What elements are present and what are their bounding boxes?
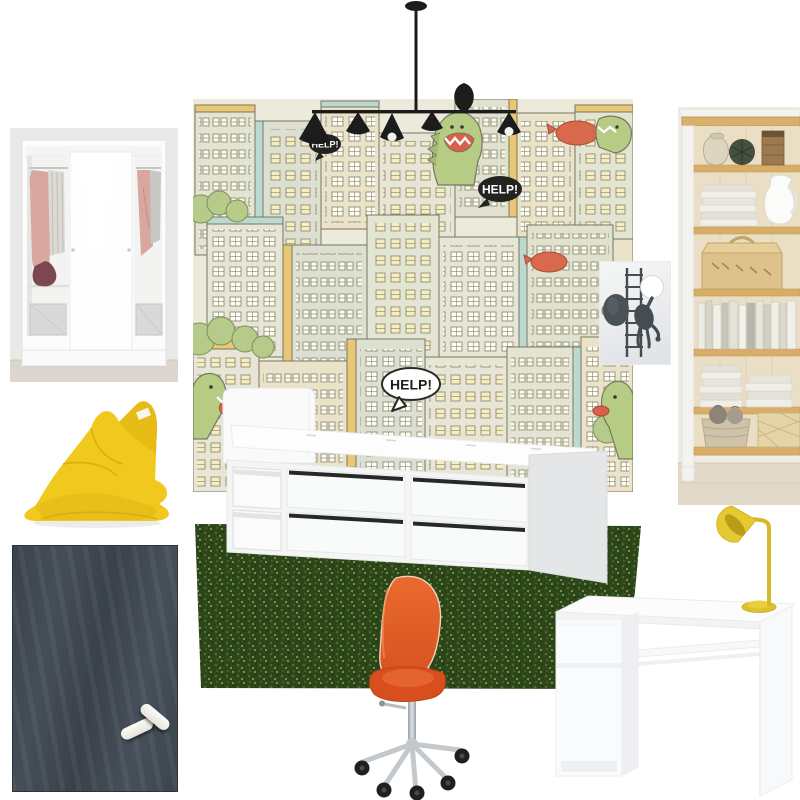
pendant-frame	[312, 1, 516, 113]
wardrobe-body	[22, 140, 166, 369]
chalkboard[interactable]	[12, 545, 178, 792]
beanbag-body	[24, 401, 169, 521]
moodboard-canvas: HELP! HELP! HELP!	[0, 0, 800, 800]
climbing-man-wall-sconce[interactable]	[600, 262, 670, 364]
orange-desk-chair[interactable]	[352, 568, 477, 800]
yellow-beanbag[interactable]	[5, 372, 190, 540]
linear-pendant-light[interactable]	[295, 0, 525, 160]
chair-base	[355, 696, 470, 800]
help-bubble-2-text: HELP!	[482, 183, 518, 197]
white-desk[interactable]	[548, 500, 800, 800]
chair-shell	[370, 576, 446, 701]
wooden-bookshelf[interactable]	[678, 107, 800, 505]
sliding-door-wardrobe[interactable]	[10, 128, 178, 382]
pendant-shades	[299, 83, 521, 144]
sconce-mount	[602, 294, 629, 326]
